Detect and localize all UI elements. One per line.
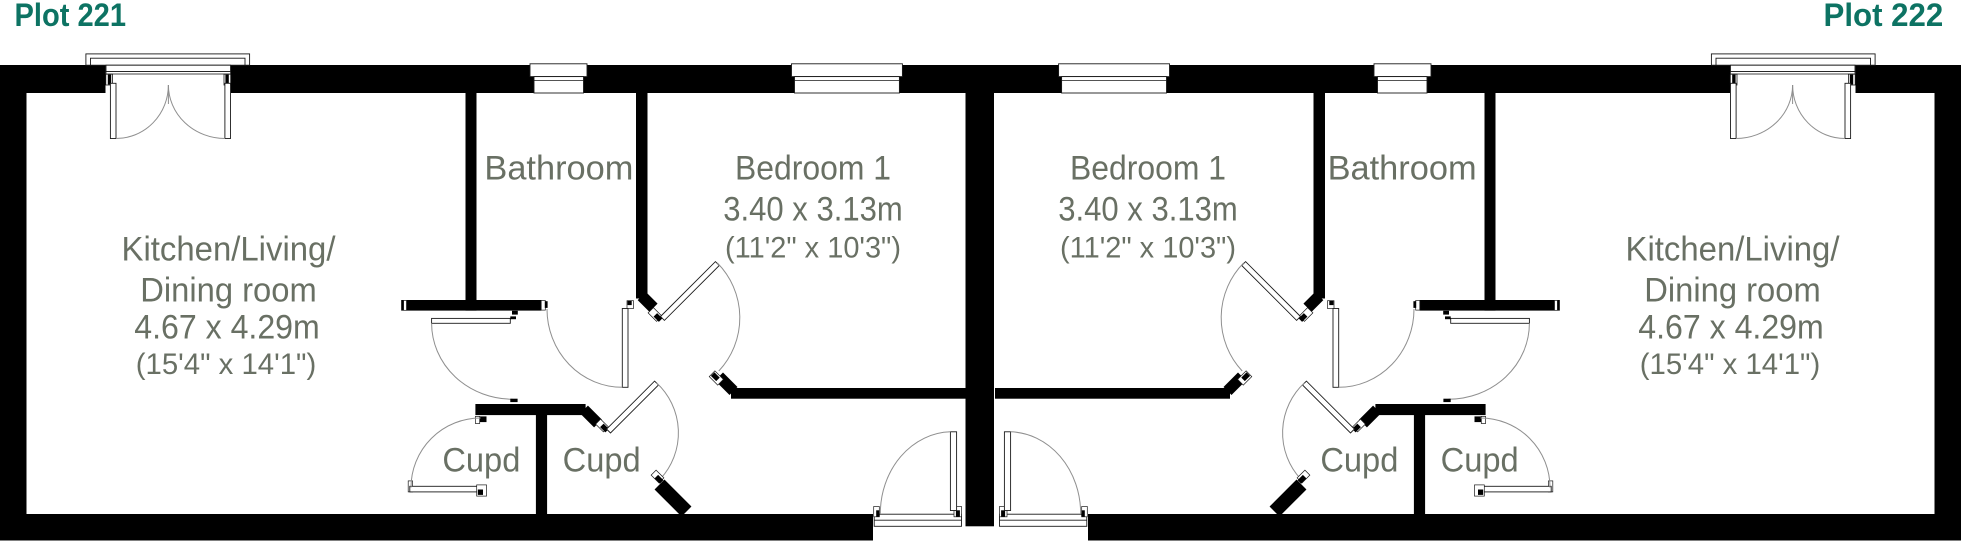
svg-text:Plot 221: Plot 221 [15,0,127,33]
svg-text:Kitchen/Living/: Kitchen/Living/ [122,231,337,269]
svg-text:Cupd: Cupd [1441,442,1519,480]
svg-text:(15'4" x 14'1"): (15'4" x 14'1") [136,348,317,381]
svg-text:4.67 x 4.29m: 4.67 x 4.29m [134,309,320,347]
svg-text:Cupd: Cupd [563,442,641,480]
svg-text:Kitchen/Living/: Kitchen/Living/ [1626,231,1841,269]
svg-text:Dining room: Dining room [1644,272,1821,310]
svg-text:Bedroom 1: Bedroom 1 [1070,150,1226,188]
svg-text:3.40 x 3.13m: 3.40 x 3.13m [1058,190,1238,228]
svg-text:Dining room: Dining room [140,272,317,310]
svg-text:(11'2" x 10'3"): (11'2" x 10'3") [725,232,901,265]
svg-text:Plot 222: Plot 222 [1824,0,1944,33]
svg-text:Bathroom: Bathroom [1328,150,1477,188]
svg-text:3.40 x 3.13m: 3.40 x 3.13m [723,190,903,228]
svg-text:(15'4" x 14'1"): (15'4" x 14'1") [1640,348,1821,381]
svg-text:Bathroom: Bathroom [484,150,633,188]
svg-text:Cupd: Cupd [442,442,520,480]
svg-text:Bedroom 1: Bedroom 1 [735,150,891,188]
svg-text:Cupd: Cupd [1320,442,1398,480]
svg-text:4.67 x 4.29m: 4.67 x 4.29m [1638,309,1824,347]
svg-text:(11'2" x 10'3"): (11'2" x 10'3") [1060,232,1236,265]
